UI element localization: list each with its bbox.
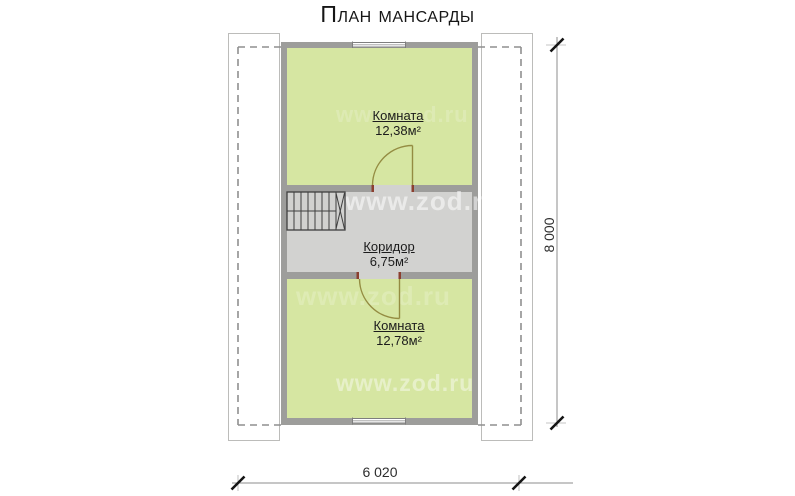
floor-plan-canvas: План мансарды www.zod.ru www.zod.ru www.… — [0, 0, 795, 496]
room-area: 12,78м² — [339, 333, 459, 348]
room-upper-label: Комната 12,38м² — [338, 108, 458, 138]
window-bottom — [353, 418, 406, 425]
room-name: Коридор — [329, 239, 449, 254]
corridor-label: Коридор 6,75м² — [329, 239, 449, 269]
window-top — [353, 42, 406, 49]
room-area: 6,75м² — [329, 254, 449, 269]
room-lower-label: Комната 12,78м² — [339, 318, 459, 348]
roof-outline-dashed — [238, 47, 521, 425]
room-name: Комната — [339, 318, 459, 333]
room-area: 12,38м² — [338, 123, 458, 138]
door-lower-room — [357, 272, 402, 319]
room-name: Комната — [338, 108, 458, 123]
door-upper-room — [372, 146, 415, 193]
dimension-width-value: 6 020 — [348, 464, 412, 480]
dimension-height-value: 8 000 — [541, 205, 557, 265]
staircase — [287, 192, 345, 230]
